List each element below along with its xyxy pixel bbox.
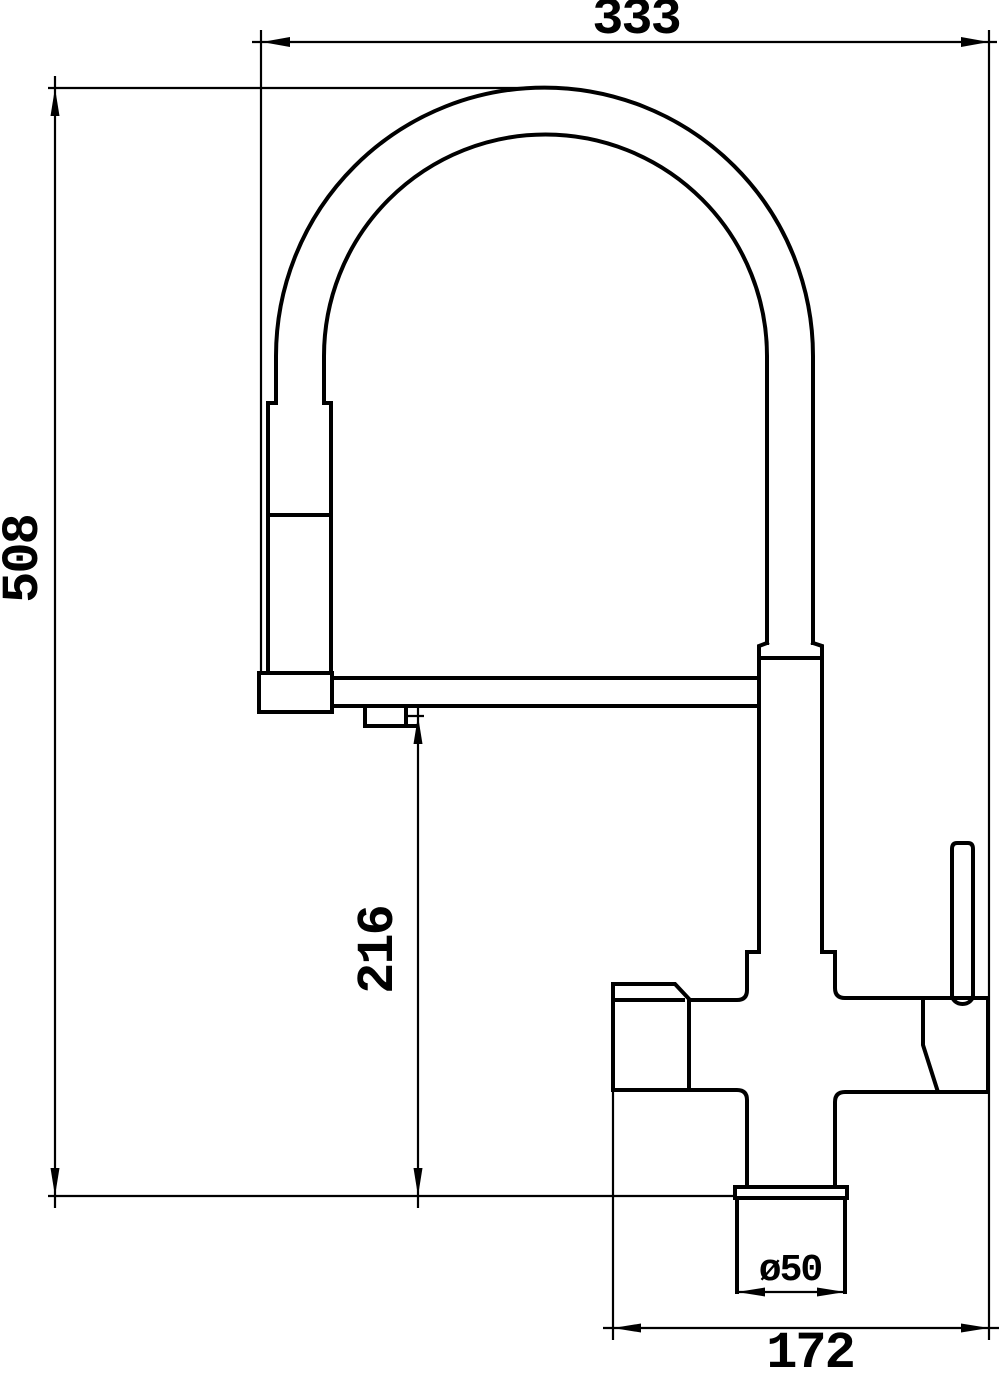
dimension-arrowheads	[51, 37, 990, 1333]
faucet-outline	[259, 88, 988, 1292]
arrow-508-top	[51, 88, 60, 116]
handle-pivot-line	[923, 1001, 937, 1089]
drawing-sheet: 333 508 216 ø50 172	[0, 0, 1000, 1377]
arrow-333-right	[961, 37, 989, 47]
body-right-mount	[822, 952, 988, 1187]
dim-label-overall-height: 508	[0, 515, 50, 603]
arrow-172-right	[961, 1324, 989, 1333]
hose-arch-outer	[276, 88, 813, 643]
handle-lever	[952, 843, 973, 1004]
arrow-333-left	[262, 37, 290, 47]
dimension-lines	[48, 30, 999, 1340]
base-flange	[735, 1187, 847, 1198]
body-left-spout	[613, 952, 759, 1187]
riser-pipe	[759, 643, 822, 952]
dim-label-outlet-height: 216	[353, 906, 405, 994]
arrow-172-left	[613, 1324, 641, 1333]
support-arm	[332, 678, 759, 706]
dim-label-base-diameter: ø50	[759, 1252, 821, 1290]
arrow-216-top	[414, 716, 423, 744]
arrow-216-bottom	[414, 1168, 423, 1196]
arrow-508-bottom	[51, 1168, 60, 1196]
dim-label-footprint-width: 172	[766, 1328, 854, 1377]
spray-head-base	[259, 673, 332, 712]
spout-detail-lines	[613, 1000, 689, 1090]
faucet-line-drawing	[0, 0, 1000, 1377]
hose-arch-inner	[324, 135, 767, 644]
spray-head-body	[268, 403, 331, 673]
dim-label-overall-width: 333	[592, 0, 680, 46]
